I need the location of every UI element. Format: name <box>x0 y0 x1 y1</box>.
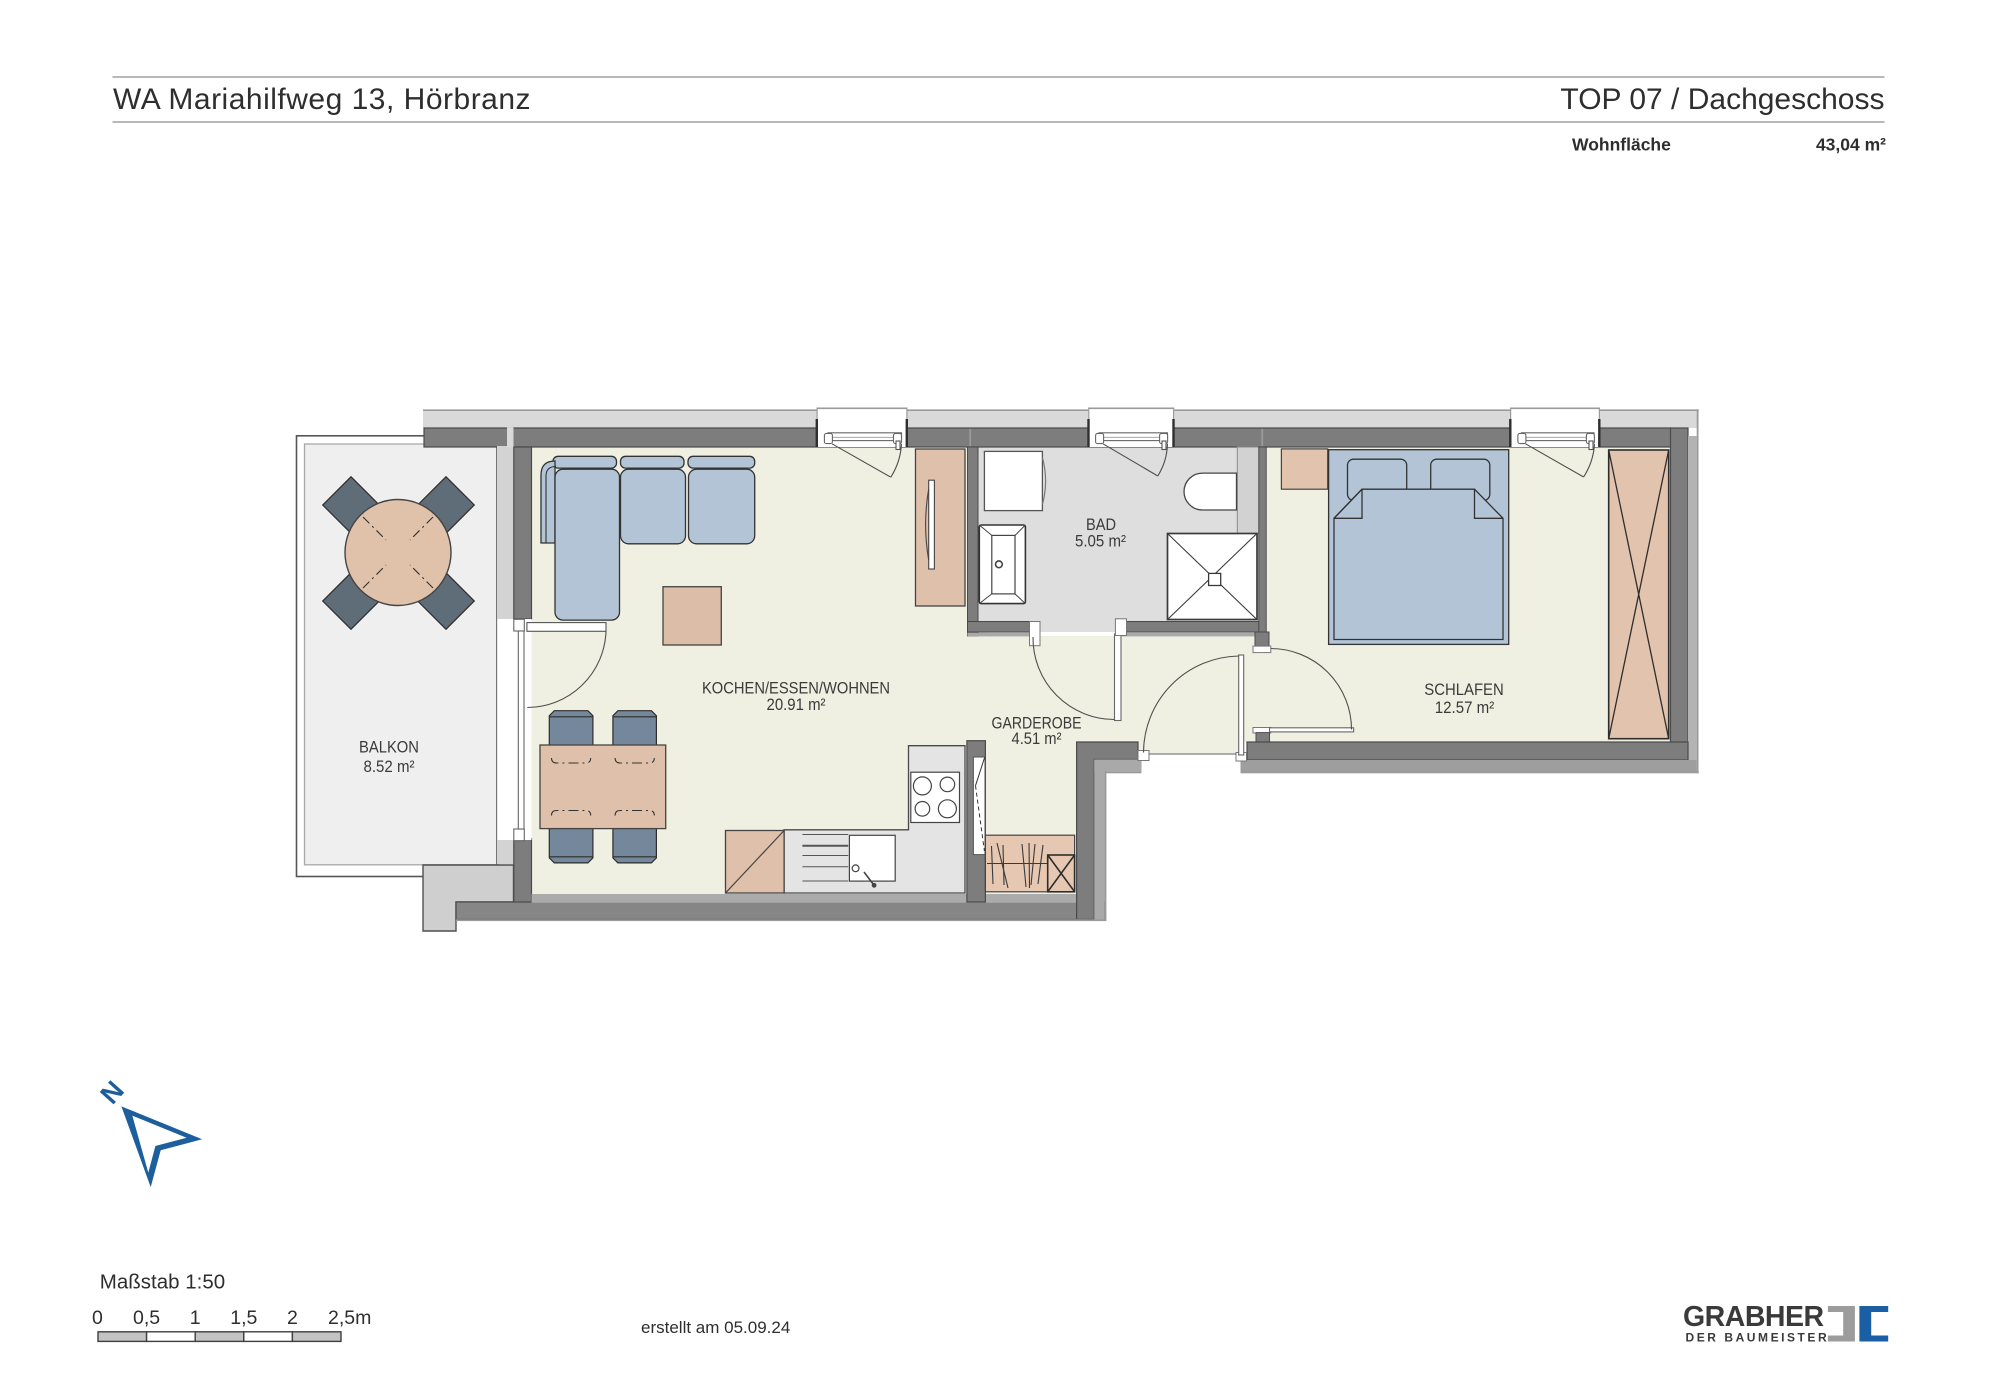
svg-text:1: 1 <box>190 1307 201 1329</box>
svg-text:2,5m: 2,5m <box>328 1307 371 1329</box>
svg-text:0,5: 0,5 <box>133 1307 160 1329</box>
svg-text:12.57 m²: 12.57 m² <box>1435 698 1495 717</box>
svg-text:1,5: 1,5 <box>230 1307 257 1329</box>
svg-text:0: 0 <box>92 1307 103 1329</box>
svg-text:2: 2 <box>287 1307 298 1329</box>
svg-text:erstellt am 05.09.24: erstellt am 05.09.24 <box>641 1318 790 1337</box>
svg-text:SCHLAFEN: SCHLAFEN <box>1424 680 1504 699</box>
svg-text:8.52 m²: 8.52 m² <box>364 757 415 776</box>
svg-text:43,04 m²: 43,04 m² <box>1816 135 1886 155</box>
svg-text:GRABHER: GRABHER <box>1683 1301 1824 1333</box>
svg-text:Wohnfläche: Wohnfläche <box>1572 135 1671 155</box>
svg-text:TOP 07 / Dachgeschoss: TOP 07 / Dachgeschoss <box>1560 83 1884 116</box>
svg-text:DER BAUMEISTER: DER BAUMEISTER <box>1686 1331 1830 1345</box>
svg-text:20.91 m²: 20.91 m² <box>767 695 826 714</box>
svg-text:4.51 m²: 4.51 m² <box>1012 729 1062 748</box>
svg-text:Maßstab 1:50: Maßstab 1:50 <box>100 1271 225 1294</box>
svg-text:BALKON: BALKON <box>359 738 419 757</box>
svg-text:WA Mariahilfweg 13, Hörbranz: WA Mariahilfweg 13, Hörbranz <box>113 83 531 116</box>
svg-text:5.05 m²: 5.05 m² <box>1075 532 1126 551</box>
